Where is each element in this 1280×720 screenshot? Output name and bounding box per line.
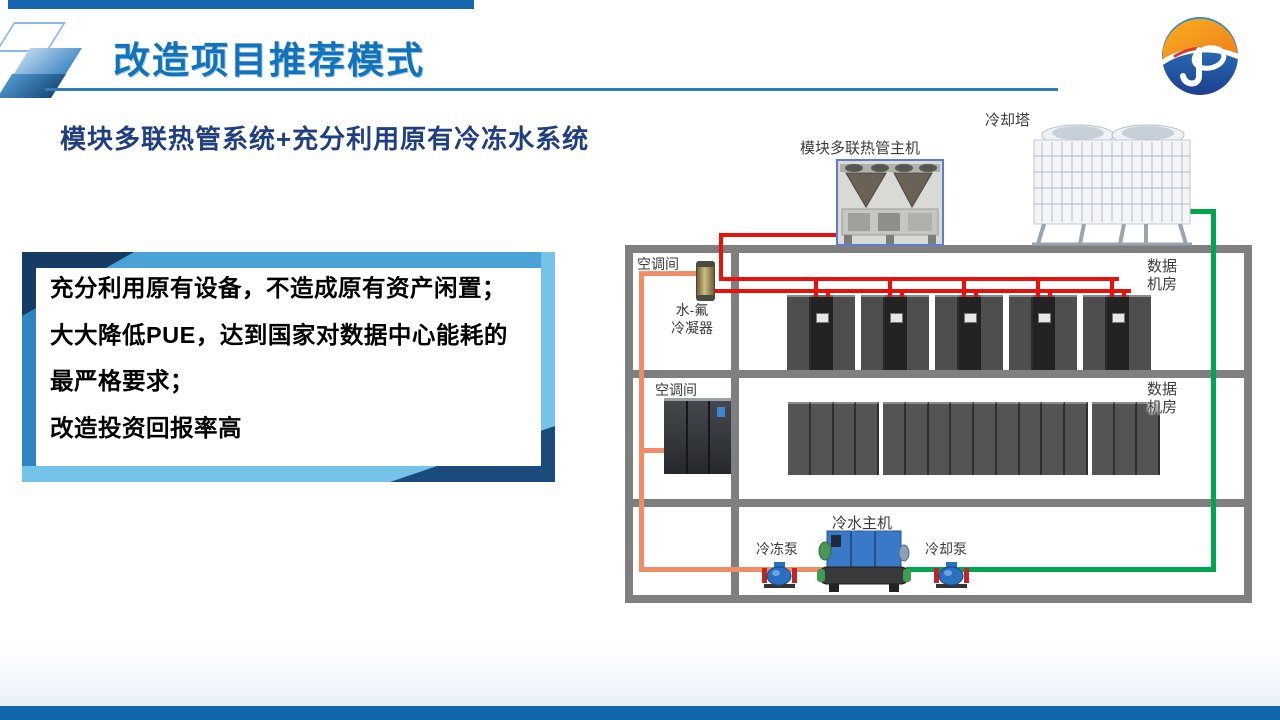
system-diagram: 模块多联热管主机 冷却塔 空调间 水-氟 冷凝器 数据 机房 空调间 数据 机房… — [0, 0, 1280, 720]
chilled-water-pipe-vertical — [639, 271, 644, 572]
water-fluorine-condenser — [696, 261, 715, 301]
label-condenser: 水-氟 冷凝器 — [662, 301, 722, 337]
label-ac-room-1: 空调间 — [637, 254, 679, 274]
refrigerant-drop — [1048, 291, 1052, 297]
refrigerant-drop — [962, 279, 966, 297]
water-chiller-image — [817, 529, 911, 593]
refrigerant-drop — [1110, 279, 1114, 297]
cooling-water-pump-image — [934, 560, 969, 589]
crac-logo — [717, 407, 725, 417]
server-rack-group — [861, 295, 929, 370]
label-chiller: 冷水主机 — [832, 512, 892, 533]
refrigerant-header-lower — [711, 289, 1131, 293]
in-row-cooler — [959, 295, 981, 370]
refrigerant-drop — [826, 291, 830, 297]
bottom-accent-bar — [0, 706, 1280, 720]
label-ac-room-2: 空调间 — [655, 380, 697, 400]
slide: 改造项目推荐模式 模块多联热管系统+充分利用原有冷冻水系统 — [0, 0, 1280, 720]
label-cooling-pump: 冷却泵 — [925, 539, 967, 559]
in-row-cooler — [811, 295, 833, 370]
frame-left — [625, 245, 633, 603]
frame-divider-1 — [625, 370, 1252, 378]
bottom-gradient — [0, 648, 1280, 706]
server-rack-group — [935, 295, 1003, 370]
refrigerant-pipe-top — [719, 233, 838, 237]
server-rack-row — [788, 402, 1160, 475]
label-chilled-pump: 冷冻泵 — [756, 539, 798, 559]
frame-divider-2 — [625, 499, 1252, 507]
frame-right — [1244, 245, 1252, 603]
refrigerant-drop — [888, 279, 892, 297]
chilled-water-pipe-to-crac — [639, 448, 667, 453]
crac-unit-image — [664, 398, 731, 474]
label-data-room-2: 数据 机房 — [1147, 381, 1177, 417]
frame-bottom — [625, 595, 1252, 603]
in-row-cooler — [1033, 295, 1055, 370]
label-heat-pipe-unit: 模块多联热管主机 — [800, 137, 920, 158]
cooling-tower-image — [1028, 122, 1196, 246]
in-row-cooler — [885, 295, 907, 370]
frame-room-divider — [731, 245, 739, 603]
refrigerant-drop — [974, 291, 978, 297]
in-row-cooler — [1107, 295, 1129, 370]
refrigerant-pipe-riser — [719, 233, 723, 281]
server-rack-group — [1009, 295, 1077, 370]
refrigerant-drop — [1122, 291, 1126, 297]
refrigerant-header-upper — [719, 277, 1119, 281]
refrigerant-drop — [900, 291, 904, 297]
refrigerant-drop — [1036, 279, 1040, 297]
refrigerant-drop — [814, 279, 818, 297]
cooling-water-pipe-vertical — [1211, 209, 1216, 572]
label-cooling-tower: 冷却塔 — [985, 109, 1030, 130]
chilled-water-pump-image — [762, 560, 797, 589]
server-rack-group — [1083, 295, 1151, 370]
server-rack-group — [787, 295, 855, 370]
heat-pipe-unit-image — [836, 159, 944, 246]
label-data-room-1: 数据 机房 — [1147, 258, 1177, 294]
